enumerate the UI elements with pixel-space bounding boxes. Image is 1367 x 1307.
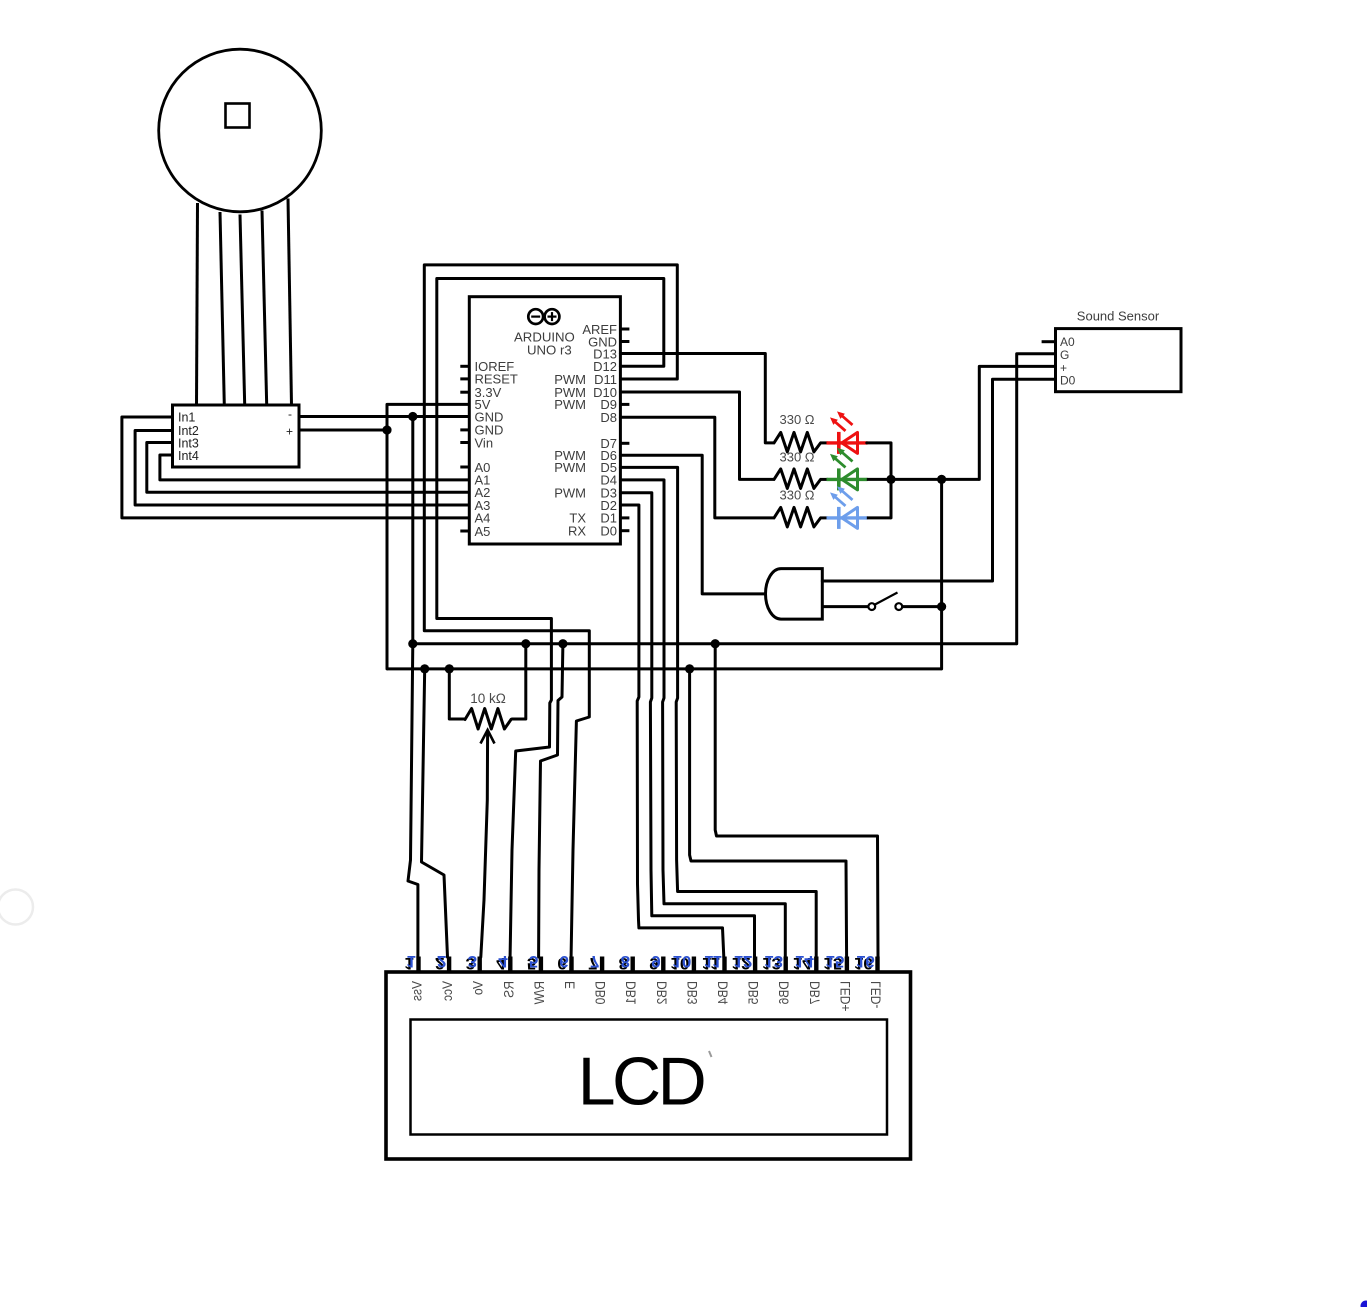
- svg-text:3: 3: [468, 952, 477, 971]
- svg-text:Vss: Vss: [409, 981, 425, 1001]
- svg-text:Int4: Int4: [178, 449, 199, 463]
- svg-text:DB6: DB6: [776, 981, 792, 1004]
- svg-text:E: E: [562, 981, 578, 989]
- svg-text:DB5: DB5: [745, 981, 761, 1004]
- svg-text:10 kΩ: 10 kΩ: [470, 691, 506, 706]
- svg-text:LED-: LED-: [868, 981, 884, 1008]
- svg-text:5: 5: [529, 952, 538, 971]
- svg-text:LED+: LED+: [837, 981, 853, 1011]
- svg-text:2: 2: [437, 952, 446, 971]
- svg-text:In1: In1: [178, 411, 195, 425]
- svg-text:DB2: DB2: [653, 981, 669, 1004]
- svg-text:DB3: DB3: [684, 981, 700, 1004]
- svg-text:330 Ω: 330 Ω: [779, 412, 814, 427]
- svg-text:PWM: PWM: [554, 486, 586, 501]
- svg-text:12: 12: [734, 952, 753, 971]
- svg-text:LCD: LCD: [578, 1044, 704, 1120]
- svg-text:DB7: DB7: [806, 981, 822, 1004]
- svg-text:PWM: PWM: [554, 397, 586, 412]
- svg-text:RX: RX: [568, 524, 586, 539]
- svg-text:DB0: DB0: [592, 981, 608, 1004]
- svg-text:16: 16: [856, 952, 875, 971]
- svg-text:D0: D0: [600, 524, 617, 539]
- svg-text:DB1: DB1: [623, 981, 639, 1004]
- svg-text:PWM: PWM: [554, 460, 586, 475]
- svg-text:Sound Sensor: Sound Sensor: [1077, 309, 1160, 324]
- svg-text:-: -: [288, 407, 292, 421]
- svg-text:G: G: [1060, 348, 1069, 362]
- svg-text:UNO r3: UNO r3: [527, 343, 572, 358]
- svg-text:D0: D0: [1060, 373, 1076, 387]
- svg-text:RS: RS: [500, 981, 516, 998]
- svg-text:DB4: DB4: [715, 981, 731, 1004]
- svg-text:7: 7: [590, 952, 599, 971]
- svg-text:330 Ω: 330 Ω: [779, 450, 814, 465]
- svg-text:8: 8: [621, 952, 630, 971]
- svg-text:14: 14: [795, 952, 814, 971]
- svg-text:11: 11: [704, 952, 722, 971]
- svg-text:Vo: Vo: [470, 981, 486, 995]
- svg-text:A0: A0: [1060, 335, 1075, 349]
- svg-text:330 Ω: 330 Ω: [779, 488, 814, 503]
- svg-text:15: 15: [825, 952, 844, 971]
- svg-text:10: 10: [672, 952, 691, 971]
- svg-text:D8: D8: [600, 410, 617, 425]
- svg-text:+: +: [286, 425, 293, 439]
- svg-text:A5: A5: [475, 524, 491, 539]
- svg-text:4: 4: [498, 952, 508, 971]
- svg-text:6: 6: [559, 952, 568, 971]
- svg-text:Vcc: Vcc: [439, 981, 455, 1001]
- svg-text:Vin: Vin: [475, 435, 494, 450]
- svg-text:R/W: R/W: [531, 981, 547, 1005]
- svg-text:13: 13: [764, 952, 783, 971]
- svg-text:1: 1: [406, 952, 415, 971]
- svg-text:9: 9: [651, 952, 660, 971]
